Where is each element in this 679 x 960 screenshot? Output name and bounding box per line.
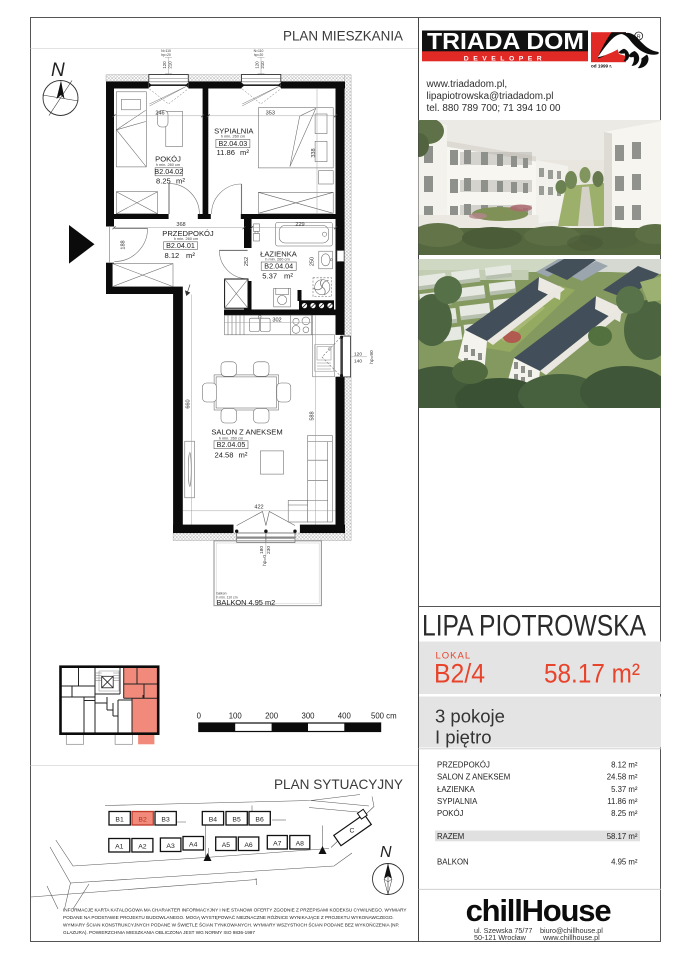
svg-text:A7: A7 bbox=[273, 841, 282, 848]
svg-text:11.86: 11.86 bbox=[217, 148, 235, 157]
svg-text:210: 210 bbox=[167, 61, 172, 69]
svg-text:302: 302 bbox=[272, 317, 281, 323]
svg-text:8.12 m²: 8.12 m² bbox=[611, 761, 638, 770]
svg-text:m²: m² bbox=[284, 271, 293, 280]
svg-text:B2.04.02: B2.04.02 bbox=[154, 167, 183, 176]
svg-text:422: 422 bbox=[254, 505, 263, 511]
svg-text:140: 140 bbox=[354, 359, 362, 365]
svg-text:B6: B6 bbox=[255, 817, 264, 824]
svg-text:8.12: 8.12 bbox=[165, 251, 180, 260]
svg-text:B2.04.04: B2.04.04 bbox=[264, 262, 293, 271]
svg-text:SYPIALNIA: SYPIALNIA bbox=[437, 797, 478, 806]
svg-text:B3: B3 bbox=[161, 817, 170, 824]
svg-text:B4: B4 bbox=[209, 817, 218, 824]
svg-text:chillHouse: chillHouse bbox=[466, 893, 612, 928]
svg-text:TRIADA DOM: TRIADA DOM bbox=[427, 28, 584, 54]
svg-text:4.95 m²: 4.95 m² bbox=[611, 858, 638, 867]
svg-text:A3: A3 bbox=[166, 843, 175, 850]
svg-text:A8: A8 bbox=[296, 841, 305, 848]
svg-text:24.58: 24.58 bbox=[215, 451, 234, 460]
svg-text:PODANE NA PODSTAWIE PROJEKTU B: PODANE NA PODSTAWIE PROJEKTU BUDOWLANEGO… bbox=[63, 914, 394, 920]
svg-text:24.58 m²: 24.58 m² bbox=[607, 773, 638, 782]
svg-text:N: N bbox=[380, 844, 392, 861]
svg-text:8.25 m²: 8.25 m² bbox=[611, 809, 638, 818]
svg-text:120: 120 bbox=[162, 61, 167, 69]
svg-text:ŁAZIENKA: ŁAZIENKA bbox=[437, 785, 475, 794]
svg-text:hp=90: hp=90 bbox=[369, 350, 375, 364]
svg-text:A5: A5 bbox=[222, 842, 231, 849]
svg-text:m²: m² bbox=[239, 451, 248, 460]
svg-text:500 cm: 500 cm bbox=[371, 712, 397, 721]
svg-text:tel. 880 789 700; 71 394 10 00: tel. 880 789 700; 71 394 10 00 bbox=[427, 103, 561, 114]
svg-text:660: 660 bbox=[185, 399, 191, 408]
svg-text:m²: m² bbox=[186, 251, 195, 260]
svg-text:I piętro: I piętro bbox=[435, 727, 492, 748]
svg-text:11.86 m²: 11.86 m² bbox=[607, 797, 638, 806]
svg-text:353: 353 bbox=[266, 111, 275, 117]
svg-text:A2: A2 bbox=[138, 844, 147, 851]
svg-text:RAZEM: RAZEM bbox=[437, 832, 464, 841]
svg-text:hp=0: hp=0 bbox=[262, 555, 268, 566]
svg-text:LIPA PIOTROWSKA: LIPA PIOTROWSKA bbox=[422, 610, 646, 643]
svg-text:POKÓJ: POKÓJ bbox=[437, 809, 464, 818]
svg-text:INFORMACJE KARTA KATALOGOWA MA: INFORMACJE KARTA KATALOGOWA MA CHARAKTER… bbox=[63, 908, 407, 913]
svg-text:8.25: 8.25 bbox=[156, 176, 171, 185]
svg-text:h min. 260 cm: h min. 260 cm bbox=[265, 256, 289, 261]
svg-text:120: 120 bbox=[354, 352, 362, 358]
svg-text:PLAN MIESZKANIA: PLAN MIESZKANIA bbox=[283, 28, 404, 44]
svg-text:hp=20: hp=20 bbox=[254, 53, 264, 57]
svg-text:B2.04.01: B2.04.01 bbox=[166, 241, 195, 250]
svg-text:250: 250 bbox=[309, 257, 315, 266]
svg-text:m²: m² bbox=[240, 148, 249, 157]
svg-text:338: 338 bbox=[311, 148, 317, 157]
svg-text:B2.04.05: B2.04.05 bbox=[217, 440, 246, 449]
svg-text:SALON Z ANEKSEM: SALON Z ANEKSEM bbox=[437, 773, 510, 782]
svg-text:100: 100 bbox=[229, 712, 243, 721]
svg-text:400: 400 bbox=[338, 712, 352, 721]
svg-text:368: 368 bbox=[176, 222, 185, 228]
svg-text:www.triadadom.pl,: www.triadadom.pl, bbox=[426, 79, 508, 90]
svg-text:hp=20: hp=20 bbox=[161, 53, 171, 57]
svg-text:50-121 Wrocław: 50-121 Wrocław bbox=[474, 933, 527, 942]
svg-text:h min. 260 cm: h min. 260 cm bbox=[156, 162, 180, 167]
svg-text:230: 230 bbox=[266, 546, 272, 554]
svg-text:od 1999 r.: od 1999 r. bbox=[591, 63, 612, 68]
svg-text:0: 0 bbox=[197, 712, 202, 721]
svg-text:252: 252 bbox=[244, 257, 250, 266]
svg-text:58.17 m²: 58.17 m² bbox=[544, 659, 640, 689]
svg-text:229: 229 bbox=[295, 222, 304, 228]
svg-text:B2: B2 bbox=[138, 817, 147, 824]
svg-text:GLAZURA). POWIERZCHNIA MIESZKA: GLAZURA). POWIERZCHNIA MIESZKANIA OBLICZ… bbox=[63, 930, 255, 935]
svg-text:A4: A4 bbox=[189, 842, 198, 849]
svg-text:5.37 m²: 5.37 m² bbox=[611, 785, 638, 794]
svg-text:A1: A1 bbox=[115, 844, 124, 851]
svg-text:lipapiotrowska@triadadom.pl: lipapiotrowska@triadadom.pl bbox=[427, 91, 554, 102]
svg-text:210: 210 bbox=[260, 61, 265, 69]
svg-text:B2.04.03: B2.04.03 bbox=[219, 139, 248, 148]
svg-text:m²: m² bbox=[176, 176, 185, 185]
svg-text:N: N bbox=[51, 60, 65, 81]
svg-text:188: 188 bbox=[121, 240, 127, 249]
svg-text:200: 200 bbox=[265, 712, 279, 721]
svg-text:120: 120 bbox=[254, 61, 259, 69]
svg-text:DEVELOPER: DEVELOPER bbox=[464, 55, 546, 62]
svg-text:B5: B5 bbox=[232, 817, 241, 824]
svg-text:A6: A6 bbox=[244, 842, 253, 849]
svg-text:588: 588 bbox=[309, 411, 315, 420]
svg-text:C: C bbox=[350, 828, 355, 835]
svg-text:246: 246 bbox=[155, 111, 164, 117]
svg-text:BALKON: BALKON bbox=[437, 858, 469, 867]
svg-text:3 pokoje: 3 pokoje bbox=[435, 706, 505, 727]
svg-text:58.17 m²: 58.17 m² bbox=[607, 832, 638, 841]
svg-text:h min. 260 cm: h min. 260 cm bbox=[221, 133, 245, 138]
svg-text:PRZEDPOKÓJ: PRZEDPOKÓJ bbox=[437, 761, 490, 770]
svg-text:B1: B1 bbox=[115, 817, 124, 824]
svg-text:BALKON 4.95 m2: BALKON 4.95 m2 bbox=[217, 598, 276, 607]
svg-text:B2/4: B2/4 bbox=[434, 659, 485, 689]
svg-text:180: 180 bbox=[259, 546, 265, 554]
svg-text:5.37: 5.37 bbox=[262, 271, 277, 280]
svg-text:300: 300 bbox=[301, 712, 315, 721]
svg-text:WYMIARY ŚCIAN KONSTRUKCYJNYCH: WYMIARY ŚCIAN KONSTRUKCYJNYCH PODANE W Ś… bbox=[63, 921, 399, 928]
svg-text:www.chillhouse.pl: www.chillhouse.pl bbox=[542, 933, 600, 942]
svg-text:PLAN SYTUACYJNY: PLAN SYTUACYJNY bbox=[274, 776, 404, 792]
